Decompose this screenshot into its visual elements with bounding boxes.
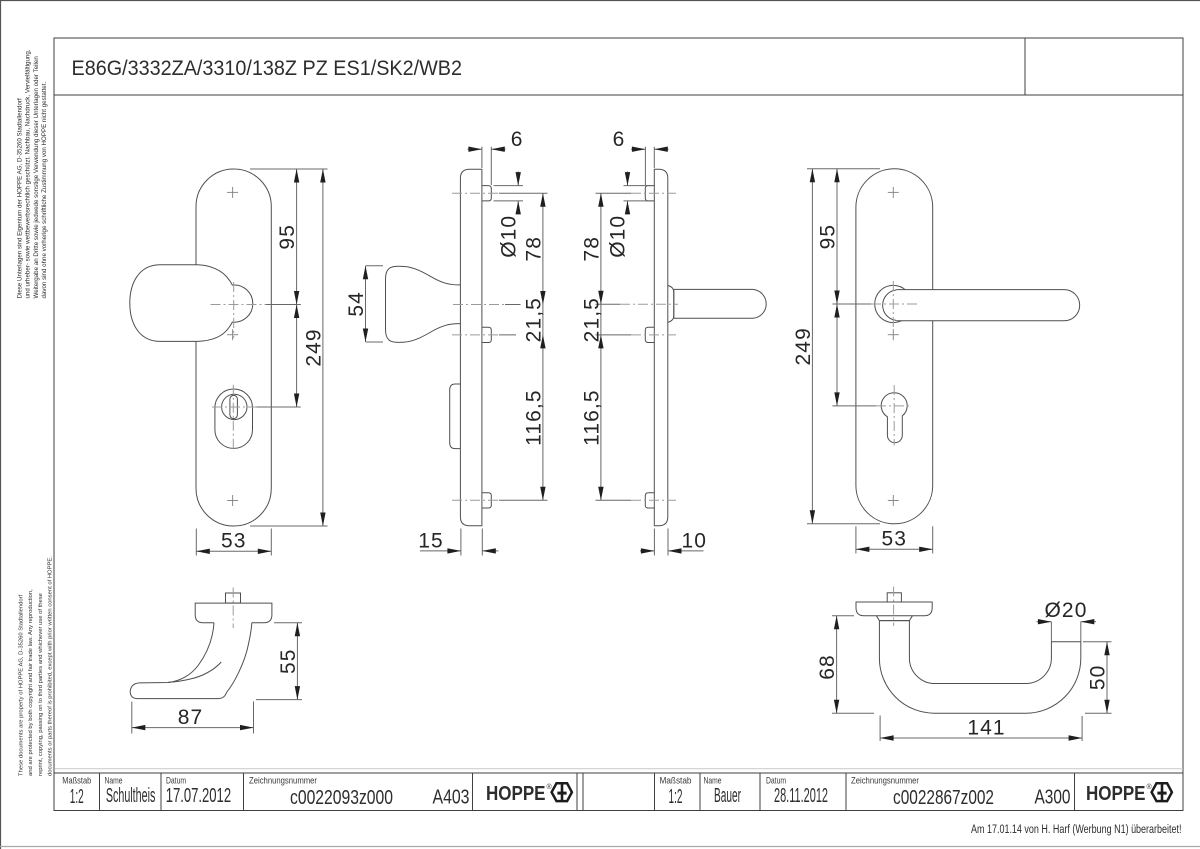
svg-text:87: 87 <box>178 706 204 729</box>
svg-text:55: 55 <box>277 648 300 674</box>
svg-text:95: 95 <box>816 224 839 250</box>
svg-text:116,5: 116,5 <box>522 389 545 446</box>
svg-text:68: 68 <box>816 654 839 680</box>
svg-text:c0022093z000: c0022093z000 <box>290 787 393 809</box>
svg-text:und urheber- sowie wettbewerbs: und urheber- sowie wettbewerbsrechtlich … <box>25 49 32 298</box>
svg-text:95: 95 <box>276 224 299 250</box>
svg-text:A300: A300 <box>1035 787 1071 809</box>
svg-text:Schultheis: Schultheis <box>106 785 156 807</box>
svg-text:54: 54 <box>345 291 368 317</box>
svg-text:1:2: 1:2 <box>70 786 84 808</box>
svg-text:Ø10: Ø10 <box>607 215 630 258</box>
svg-text:Bauer: Bauer <box>714 785 741 807</box>
svg-text:21,5: 21,5 <box>580 297 603 342</box>
svg-text:116,5: 116,5 <box>580 389 603 446</box>
svg-text:249: 249 <box>302 328 325 366</box>
svg-text:15: 15 <box>418 529 444 552</box>
svg-text:davon sind ohne vorherige schr: davon sind ohne vorherige schriftliche Z… <box>41 82 48 299</box>
svg-text:Ø10: Ø10 <box>497 215 520 258</box>
svg-text:HOPPE: HOPPE <box>486 782 546 805</box>
svg-text:Name: Name <box>105 776 123 786</box>
svg-text:documents or parts thereof is: documents or parts thereof is prohibited… <box>48 556 54 776</box>
svg-text:17.07.2012: 17.07.2012 <box>166 785 231 807</box>
svg-text:28.11.2012: 28.11.2012 <box>774 785 828 807</box>
svg-text:Weitergabe an Dritte sowie jed: Weitergabe an Dritte sowie jedwede sonst… <box>33 56 40 299</box>
svg-text:and are protected by both copy: and are protected by both copyright and … <box>28 589 34 776</box>
svg-text:6: 6 <box>511 128 524 151</box>
svg-text:Am 17.01.14 von H. Harf (Werbu: Am 17.01.14 von H. Harf (Werbung N1) übe… <box>971 822 1182 836</box>
svg-text:53: 53 <box>882 527 908 550</box>
svg-text:E86G/3332ZA/3310/138Z PZ ES1/S: E86G/3332ZA/3310/138Z PZ ES1/SK2/WB2 <box>72 56 463 80</box>
svg-text:21,5: 21,5 <box>522 297 545 342</box>
svg-text:Maßstab: Maßstab <box>660 776 692 786</box>
svg-text:A403: A403 <box>433 787 470 809</box>
svg-text:Datum: Datum <box>766 776 786 786</box>
svg-text:Ø20: Ø20 <box>1045 599 1088 622</box>
svg-text:1:2: 1:2 <box>669 786 683 808</box>
svg-text:These documents are property o: These documents are property of HOPPE AG… <box>19 594 25 776</box>
svg-text:50: 50 <box>1087 665 1110 691</box>
svg-text:Diese Unterlagen sind Eigentum: Diese Unterlagen sind Eigentum der HOPPE… <box>17 98 24 298</box>
svg-text:Datum: Datum <box>166 776 186 786</box>
svg-text:Maßstab: Maßstab <box>62 776 91 786</box>
svg-text:6: 6 <box>613 128 626 151</box>
svg-text:249: 249 <box>792 327 815 365</box>
svg-text:Zeichnungsnummer: Zeichnungsnummer <box>249 776 317 786</box>
svg-text:53: 53 <box>221 529 247 552</box>
svg-text:78: 78 <box>580 236 603 262</box>
svg-text:10: 10 <box>682 529 708 552</box>
svg-text:Zeichnungsnummer: Zeichnungsnummer <box>851 776 919 786</box>
svg-text:78: 78 <box>522 236 545 262</box>
svg-text:reprint, copying, passing on t: reprint, copying, passing on to third pa… <box>38 593 44 776</box>
svg-text:Name: Name <box>704 776 722 786</box>
svg-text:141: 141 <box>967 716 1005 739</box>
svg-text:c0022867z002: c0022867z002 <box>893 787 994 809</box>
